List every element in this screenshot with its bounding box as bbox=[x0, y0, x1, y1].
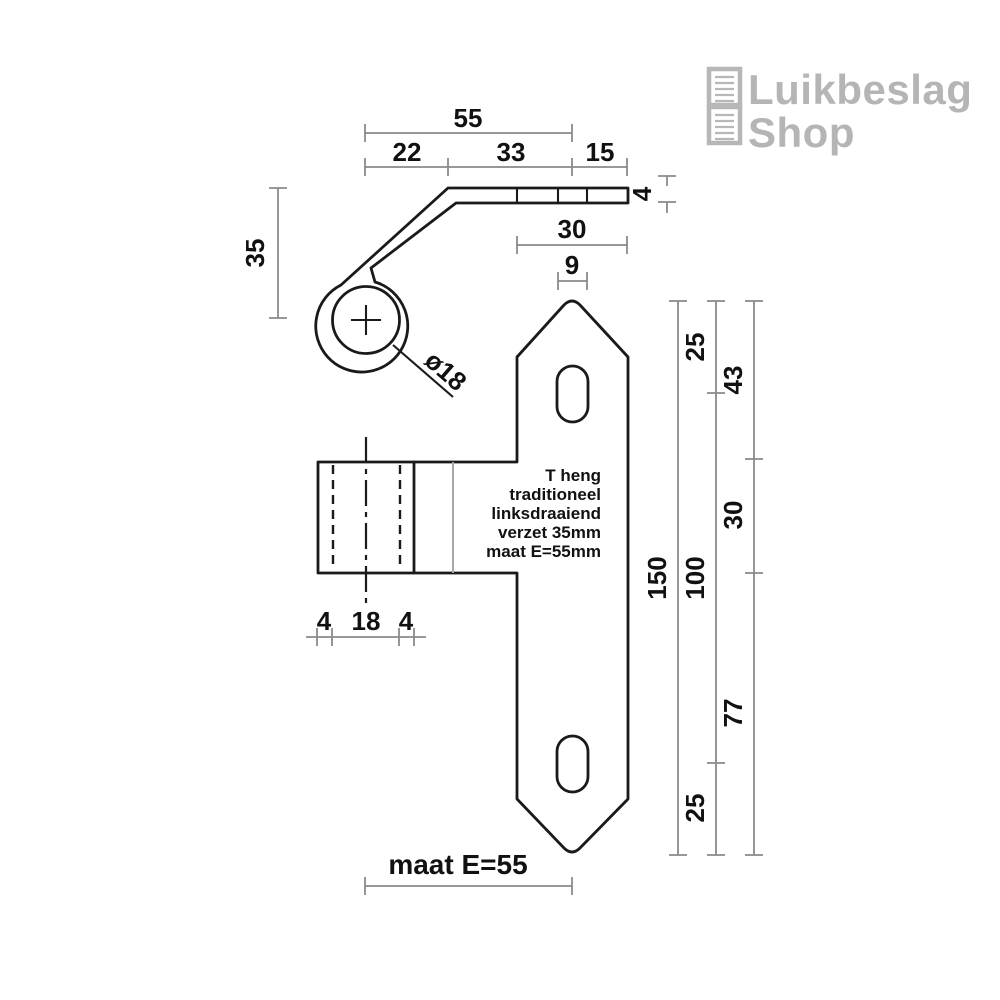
dim-label-4-thickness: 4 bbox=[627, 186, 657, 201]
dim-label-77: 77 bbox=[718, 699, 748, 728]
dim-label-18: 18 bbox=[352, 606, 381, 636]
dimension-offset-35: 35 bbox=[240, 188, 287, 318]
product-line-4: verzet 35mm bbox=[498, 523, 601, 542]
dimension-knuckle-4-18-4: 4 18 4 bbox=[306, 606, 426, 646]
shutter-panel-bottom bbox=[709, 107, 740, 143]
dimension-pin-diameter: ø18 bbox=[419, 345, 473, 397]
dim-label-33: 33 bbox=[497, 137, 526, 167]
dim-label-4-right: 4 bbox=[399, 606, 414, 636]
logo: Luikbeslag Shop bbox=[709, 66, 972, 156]
dim-label-55: 55 bbox=[454, 103, 483, 133]
dimension-strap-thickness: 4 bbox=[627, 176, 676, 213]
dim-label-4-left: 4 bbox=[317, 606, 332, 636]
dim-label-9: 9 bbox=[565, 250, 579, 280]
dim-label-30: 30 bbox=[558, 214, 587, 244]
center-cross-icon bbox=[351, 305, 381, 335]
dimension-slot-width: 9 bbox=[558, 250, 587, 290]
dim-label-maat-e: maat E=55 bbox=[388, 849, 527, 880]
dim-label-100: 100 bbox=[680, 556, 710, 599]
product-line-5: maat E=55mm bbox=[486, 542, 601, 561]
bottom-slot-hole bbox=[557, 736, 588, 792]
product-line-1: T heng bbox=[545, 466, 601, 485]
dimension-maat-e: maat E=55 bbox=[365, 849, 572, 895]
product-line-2: traditioneel bbox=[509, 485, 601, 504]
dim-label-25-top: 25 bbox=[680, 333, 710, 362]
dim-label-25-bottom: 25 bbox=[680, 794, 710, 823]
dim-label-43: 43 bbox=[718, 366, 748, 395]
product-line-3: linksdraaiend bbox=[491, 504, 601, 523]
front-view-plate bbox=[318, 301, 628, 852]
plate-and-bar-outline bbox=[318, 301, 628, 852]
technical-drawing-page: Luikbeslag Shop 55 22 33 15 4 35 bbox=[0, 0, 1000, 1000]
dim-label-150: 150 bbox=[642, 556, 672, 599]
product-description: T heng traditioneel linksdraaiend verzet… bbox=[486, 466, 601, 561]
shutter-panel-top bbox=[709, 69, 740, 105]
dim-label-35: 35 bbox=[240, 239, 270, 268]
logo-text-line2: Shop bbox=[748, 109, 855, 156]
strap-projection-lines bbox=[517, 188, 587, 203]
dim-label-22: 22 bbox=[393, 137, 422, 167]
top-slot-hole bbox=[557, 366, 588, 422]
dimension-segments-43-30-77: 43 30 77 bbox=[718, 301, 763, 855]
dimension-22-33-15: 22 33 15 bbox=[365, 137, 627, 176]
dim-label-30-seg: 30 bbox=[718, 501, 748, 530]
shutter-panels-icon bbox=[709, 69, 740, 143]
dimension-plate-width: 30 bbox=[517, 214, 627, 254]
hinge-technical-drawing: Luikbeslag Shop 55 22 33 15 4 35 bbox=[0, 0, 1000, 1000]
dim-label-diameter: ø18 bbox=[419, 345, 473, 397]
logo-text-line1: Luikbeslag bbox=[748, 66, 972, 113]
dim-label-15: 15 bbox=[586, 137, 615, 167]
